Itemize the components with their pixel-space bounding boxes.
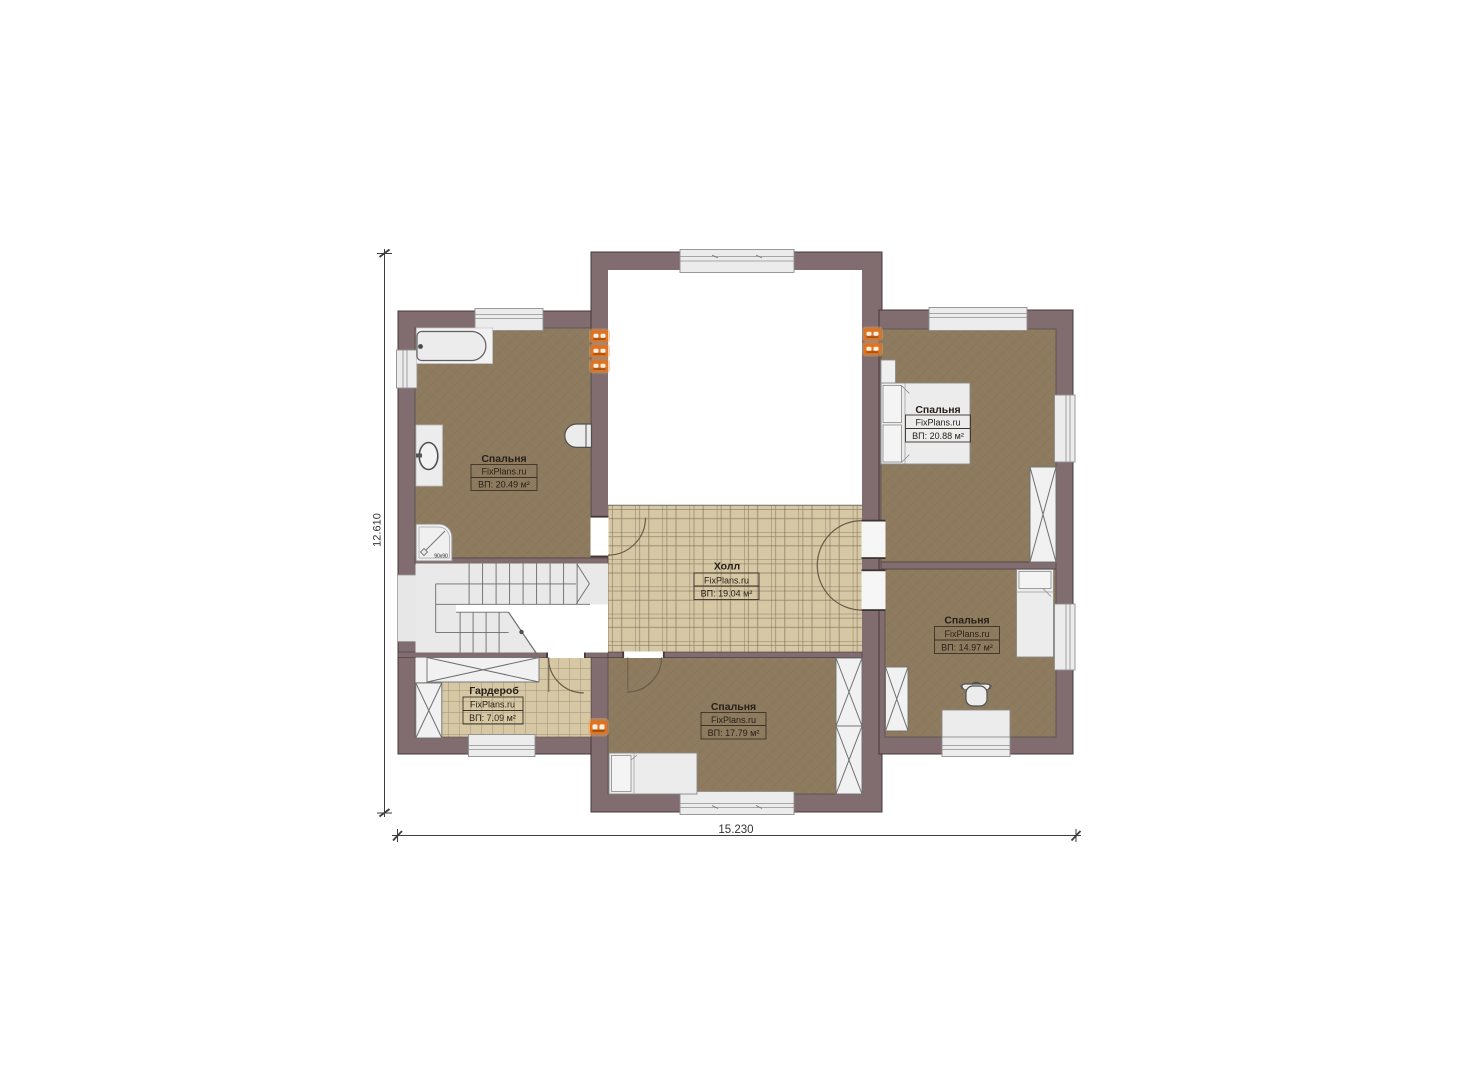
svg-text:ВП: 7.09 м²: ВП: 7.09 м²	[469, 713, 516, 723]
svg-text:ВП: 14.97 м²: ВП: 14.97 м²	[941, 643, 993, 653]
svg-text:ВП: 20.88 м²: ВП: 20.88 м²	[912, 431, 964, 441]
svg-text:Гардероб: Гардероб	[469, 685, 519, 697]
svg-text:Спальня: Спальня	[944, 615, 989, 627]
svg-text:FixPlans.ru: FixPlans.ru	[470, 700, 515, 710]
svg-text:Спальня: Спальня	[481, 453, 526, 465]
svg-text:Спальня: Спальня	[915, 404, 960, 416]
svg-text:Спальня: Спальня	[711, 701, 756, 713]
svg-text:FixPlans.ru: FixPlans.ru	[915, 418, 960, 428]
svg-text:ВП: 20.49 м²: ВП: 20.49 м²	[478, 480, 530, 490]
svg-text:FixPlans.ru: FixPlans.ru	[481, 467, 526, 477]
svg-text:90х90: 90х90	[434, 554, 448, 560]
svg-text:FixPlans.ru: FixPlans.ru	[944, 629, 989, 639]
svg-text:ВП: 19.04 м²: ВП: 19.04 м²	[701, 589, 753, 599]
svg-text:12.610: 12.610	[372, 513, 384, 547]
svg-text:15.230: 15.230	[718, 824, 753, 836]
svg-text:FixPlans.ru: FixPlans.ru	[711, 715, 756, 725]
svg-text:Холл: Холл	[714, 561, 740, 573]
svg-text:FixPlans.ru: FixPlans.ru	[704, 576, 749, 586]
svg-text:ВП: 17.79 м²: ВП: 17.79 м²	[708, 728, 760, 738]
